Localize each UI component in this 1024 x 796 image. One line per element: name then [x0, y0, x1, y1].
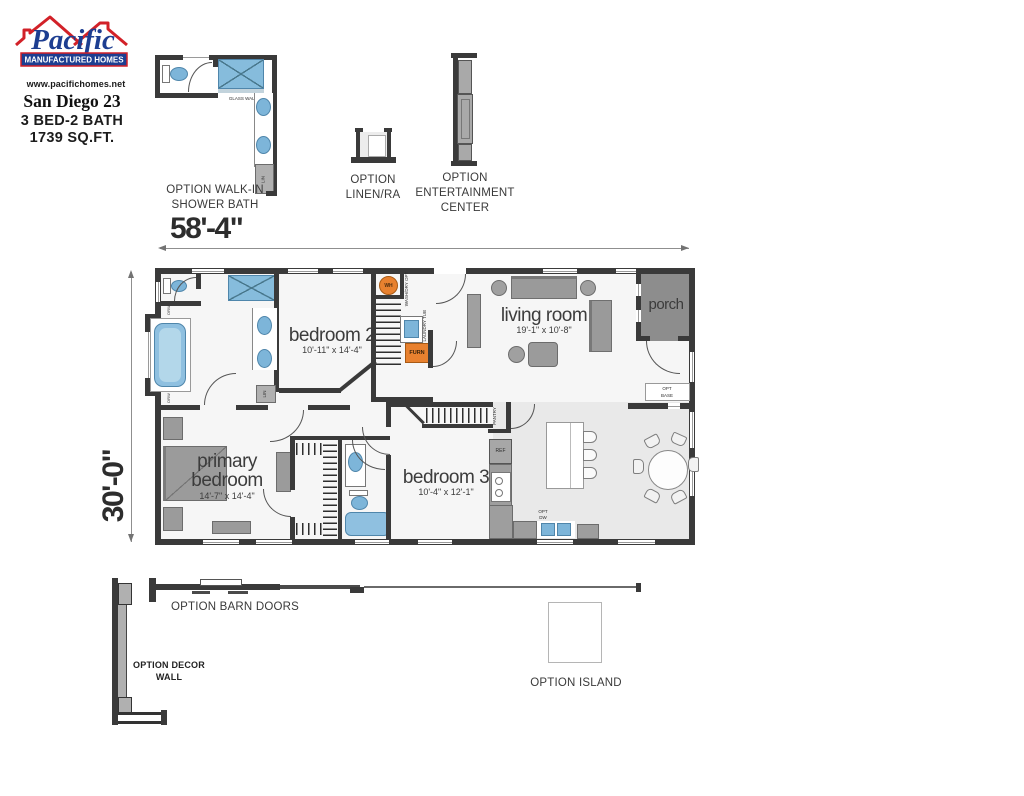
wall-segment: [155, 268, 695, 274]
porch-label: porch: [644, 297, 688, 312]
window: [636, 284, 641, 296]
round-table: [508, 346, 525, 363]
kitchen-island: [546, 422, 584, 489]
nightstand: [163, 417, 183, 440]
island-divider: [570, 423, 571, 488]
shower: [228, 275, 275, 301]
opt-dw-label: OPT DW: [536, 509, 550, 521]
bar-stool: [583, 467, 597, 479]
dining-chair: [633, 459, 644, 474]
window: [618, 540, 655, 544]
dresser: [276, 452, 291, 492]
window: [418, 540, 452, 544]
option-barn-doors-label: OPTION BARN DOORS: [170, 600, 300, 615]
arrow-left-icon: [158, 245, 166, 251]
width-dimension: 58'-4": [170, 212, 242, 246]
wall-segment: [161, 405, 200, 410]
window: [355, 540, 389, 544]
window: [636, 310, 641, 322]
barn-door-rail: [280, 585, 360, 589]
wall-segment: [290, 436, 295, 490]
wall-segment: [155, 93, 218, 98]
logo-website: www.pacifichomes.net: [10, 79, 142, 89]
floor-plan-page: Pacific MANUFACTURED HOMES www.pacificho…: [0, 0, 1024, 796]
dining-table: [648, 450, 688, 490]
range: [491, 472, 511, 502]
refrigerator-label: REF: [489, 448, 512, 454]
option-entertainment-label: OPTION ENTERTAINMENT CENTER: [415, 171, 515, 216]
wall-segment: [279, 388, 341, 393]
dimension-line: [131, 272, 132, 542]
nightstand: [163, 507, 183, 531]
entertainment-cabinet: [458, 144, 472, 161]
barn-door-rail: [364, 586, 638, 588]
logo-brand-text: Pacific: [30, 24, 115, 56]
window: [543, 269, 577, 273]
wall-segment: [196, 274, 201, 289]
opt-base-label: OPT BASE: [658, 386, 676, 400]
room-name: bedroom 3: [403, 467, 489, 488]
dresser: [212, 521, 251, 534]
window: [333, 269, 363, 273]
entertainment-cabinet: [458, 60, 472, 94]
sofa: [511, 276, 577, 299]
toilet: [351, 496, 368, 510]
door-arc: [188, 62, 212, 92]
bedroom3-label: bedroom 3 10'-4" x 12'-1": [402, 468, 490, 498]
room-dims: 10'-11" x 14'-4": [288, 346, 376, 355]
walk-in-shower: [218, 59, 264, 89]
wall-segment: [636, 583, 641, 592]
laundry-tub: [404, 320, 419, 338]
window: [616, 269, 636, 273]
wall-segment: [351, 157, 396, 163]
cabinet-detail: [461, 99, 470, 139]
decor-wall-return: [118, 712, 164, 724]
kitchen-counter: [513, 521, 537, 539]
option-island-label: OPTION ISLAND: [530, 676, 622, 691]
side-table: [491, 280, 507, 296]
dimension-line: [160, 248, 689, 249]
window: [256, 540, 292, 544]
burner: [495, 477, 503, 485]
pacific-logo: Pacific MANUFACTURED HOMES: [10, 10, 142, 78]
toilet: [170, 67, 188, 81]
closet-rod-hatch: [296, 443, 322, 455]
bar-stool: [583, 449, 597, 461]
linen-door: [368, 135, 386, 157]
wall-segment: [161, 710, 167, 725]
room-dims: 14'-7" x 14'-4": [190, 492, 264, 501]
option-decor-wall-label: OPTION DECOR WALL: [128, 660, 210, 683]
wall-segment: [386, 402, 391, 427]
room-name: living room: [501, 305, 587, 326]
logo-banner-text: MANUFACTURED HOMES: [24, 56, 124, 65]
water-heater-label: WH: [379, 283, 398, 289]
kitchen-sink: [557, 523, 571, 536]
room-dims: 10'-4" x 12'-1": [402, 488, 490, 497]
wall-segment: [149, 578, 156, 602]
arrow-up-icon: [128, 270, 134, 278]
window: [690, 352, 694, 382]
room-dims: 19'-1" x 10'-8": [494, 326, 594, 335]
burner: [495, 489, 503, 497]
console-table: [467, 294, 481, 348]
wash-dry-label: WASH/DRY OPT: [404, 264, 414, 314]
toilet-tank: [163, 278, 171, 294]
side-table: [580, 280, 596, 296]
bar-stool: [583, 431, 597, 443]
wall-segment: [236, 405, 268, 410]
window: [537, 540, 573, 544]
option-island-box: [548, 602, 602, 663]
closet-rod-hatch: [296, 523, 322, 535]
window: [156, 282, 160, 302]
living-room-label: living room 19'-1" x 10'-8": [494, 306, 594, 336]
wall-segment: [451, 161, 477, 166]
furnace-label: FURN: [405, 350, 429, 357]
bathtub: [345, 512, 390, 536]
kitchen-counter: [489, 505, 513, 539]
wall-segment: [338, 440, 342, 539]
option-linen-label: OPTION LINEN/RA: [338, 173, 408, 203]
depth-dimension: 30'-0": [97, 406, 129, 566]
kitchen-sink: [541, 523, 555, 536]
window: [288, 269, 318, 273]
wall-segment: [386, 455, 391, 539]
wall-segment: [155, 55, 160, 98]
wall-segment: [628, 403, 670, 409]
closet-rod-hatch: [426, 408, 488, 423]
title-block: San Diego 23 3 BED-2 BATH 1739 SQ.FT.: [2, 91, 142, 146]
arrow-right-icon: [681, 245, 689, 251]
window: [690, 412, 694, 448]
armchair: [528, 342, 558, 367]
barn-door-rail: [350, 587, 364, 593]
decor-wall-cap: [118, 583, 132, 605]
closet-rod-hatch: [323, 443, 337, 536]
sink: [257, 316, 272, 335]
wall-segment: [387, 130, 391, 158]
barn-door-track: [192, 591, 210, 594]
toilet-tank: [162, 65, 170, 83]
window: [192, 269, 224, 273]
model-name: San Diego 23: [2, 91, 142, 112]
wall-segment: [308, 405, 350, 410]
wall-segment: [290, 517, 295, 539]
decor-wall-panel: [118, 605, 127, 697]
wall-segment: [356, 130, 360, 158]
sink: [256, 136, 271, 154]
arrow-down-icon: [128, 534, 134, 542]
bed-bath-count: 3 BED-2 BATH: [2, 113, 142, 129]
sink: [256, 98, 271, 116]
window: [203, 540, 239, 544]
room-name: primary bedroom: [191, 451, 263, 491]
barn-door-panel: [200, 579, 242, 586]
primary-bedroom-label: primary bedroom 14'-7" x 14'-4": [190, 452, 264, 501]
square-footage: 1739 SQ.FT.: [2, 130, 142, 146]
pantry-label: PANTRY: [492, 391, 502, 441]
sink: [257, 349, 272, 368]
wardrobe-hatch: [376, 301, 401, 365]
bathtub-inner: [159, 328, 181, 382]
wall-segment: [422, 424, 493, 428]
room-name: bedroom 2: [289, 325, 375, 346]
dining-chair: [688, 457, 699, 472]
kitchen-counter: [577, 524, 599, 539]
barn-door-track: [228, 591, 248, 594]
window: [183, 55, 209, 60]
wall-segment: [680, 403, 695, 409]
option-shower-bath-label: OPTION WALK-IN SHOWER BATH: [145, 183, 285, 213]
drawer-label: DRW: [167, 297, 175, 323]
bedroom2-label: bedroom 2 10'-11" x 14'-4": [288, 326, 376, 356]
